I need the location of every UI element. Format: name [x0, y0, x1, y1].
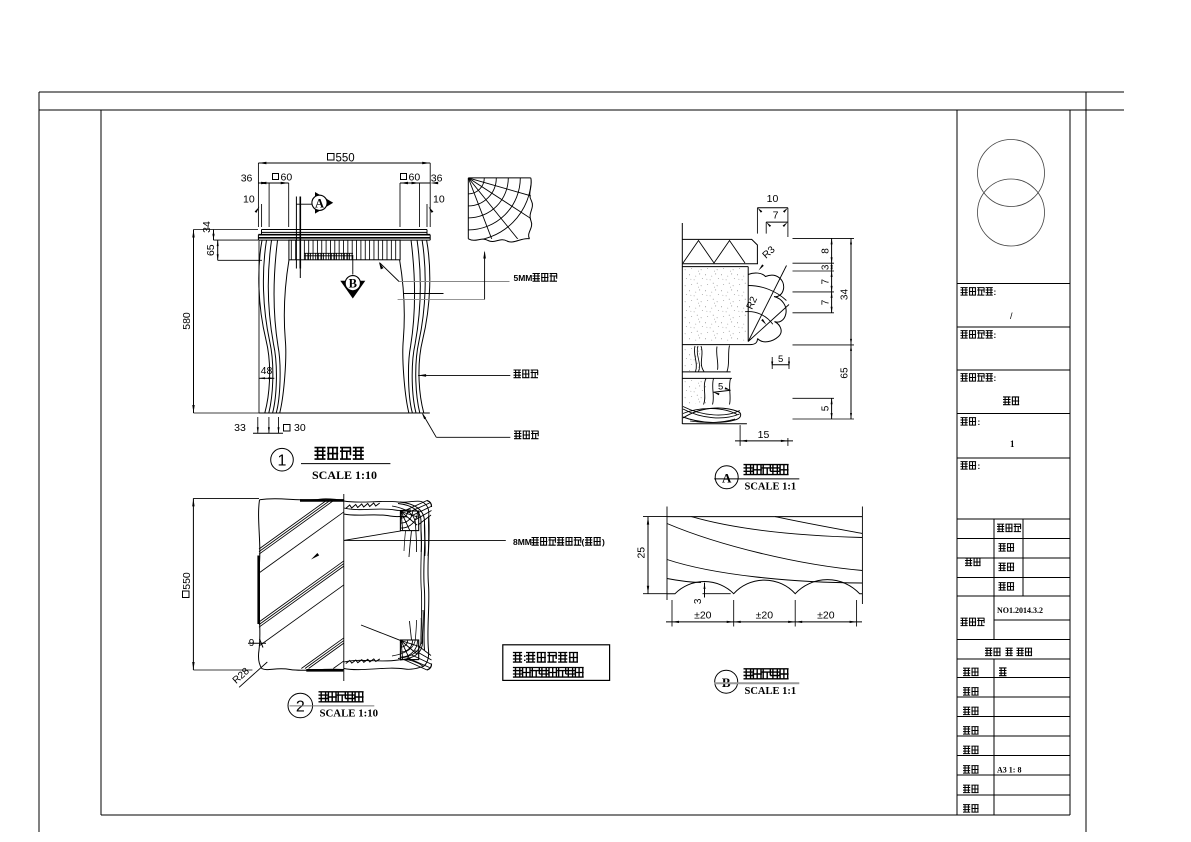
svg-text::: : — [994, 374, 997, 383]
svg-text::: : — [994, 288, 997, 297]
svg-text:7: 7 — [821, 299, 832, 305]
svg-text:NO1.2014.3.2: NO1.2014.3.2 — [997, 606, 1043, 615]
svg-text:10: 10 — [433, 194, 445, 206]
svg-text:10: 10 — [767, 193, 779, 205]
svg-text:550: 550 — [181, 572, 193, 590]
svg-text:7: 7 — [821, 278, 832, 284]
svg-text:25: 25 — [636, 547, 648, 559]
svg-text:65: 65 — [205, 244, 217, 256]
svg-text:A3 1: 8: A3 1: 8 — [997, 766, 1021, 775]
svg-text:550: 550 — [336, 153, 355, 165]
svg-text:±20: ±20 — [694, 610, 712, 622]
svg-text:34: 34 — [201, 221, 213, 233]
svg-text:33: 33 — [234, 422, 246, 434]
svg-text:2: 2 — [296, 699, 305, 716]
svg-text:1: 1 — [278, 453, 287, 470]
svg-text:36: 36 — [241, 173, 253, 185]
svg-text:65: 65 — [840, 367, 851, 379]
svg-text:B: B — [349, 277, 357, 291]
svg-text:±20: ±20 — [817, 610, 835, 622]
svg-text:10: 10 — [243, 194, 255, 206]
svg-text::: : — [523, 652, 527, 664]
svg-text:A: A — [722, 471, 732, 486]
svg-text:5: 5 — [778, 354, 783, 365]
svg-text:±20: ±20 — [756, 610, 774, 622]
svg-text:30: 30 — [294, 422, 306, 434]
svg-text:5MM: 5MM — [514, 273, 533, 283]
svg-text:SCALE 1:1: SCALE 1:1 — [745, 482, 797, 493]
svg-text:3: 3 — [693, 598, 704, 604]
svg-text:SCALE 1:1: SCALE 1:1 — [745, 686, 797, 697]
svg-text:5: 5 — [821, 405, 832, 411]
svg-text:60: 60 — [409, 172, 421, 184]
svg-text:A: A — [315, 196, 324, 210]
svg-text:36: 36 — [431, 173, 443, 185]
svg-text::: : — [978, 418, 981, 427]
svg-text:7: 7 — [773, 210, 779, 222]
svg-text:SCALE 1:10: SCALE 1:10 — [320, 708, 379, 720]
svg-text:580: 580 — [181, 312, 193, 330]
svg-text:): ) — [602, 537, 605, 547]
svg-text:48: 48 — [261, 365, 273, 377]
svg-text:8: 8 — [821, 248, 832, 254]
svg-text:8MM: 8MM — [513, 537, 532, 547]
svg-text:SCALE 1:10: SCALE 1:10 — [312, 468, 377, 482]
svg-text:1: 1 — [1010, 439, 1015, 449]
svg-text:60: 60 — [281, 172, 293, 184]
svg-text:3: 3 — [821, 264, 832, 270]
svg-text:34: 34 — [840, 289, 851, 301]
svg-text::: : — [994, 331, 997, 340]
svg-text:15: 15 — [758, 429, 770, 441]
svg-text::: : — [978, 462, 981, 471]
svg-text:(: ( — [582, 537, 585, 547]
